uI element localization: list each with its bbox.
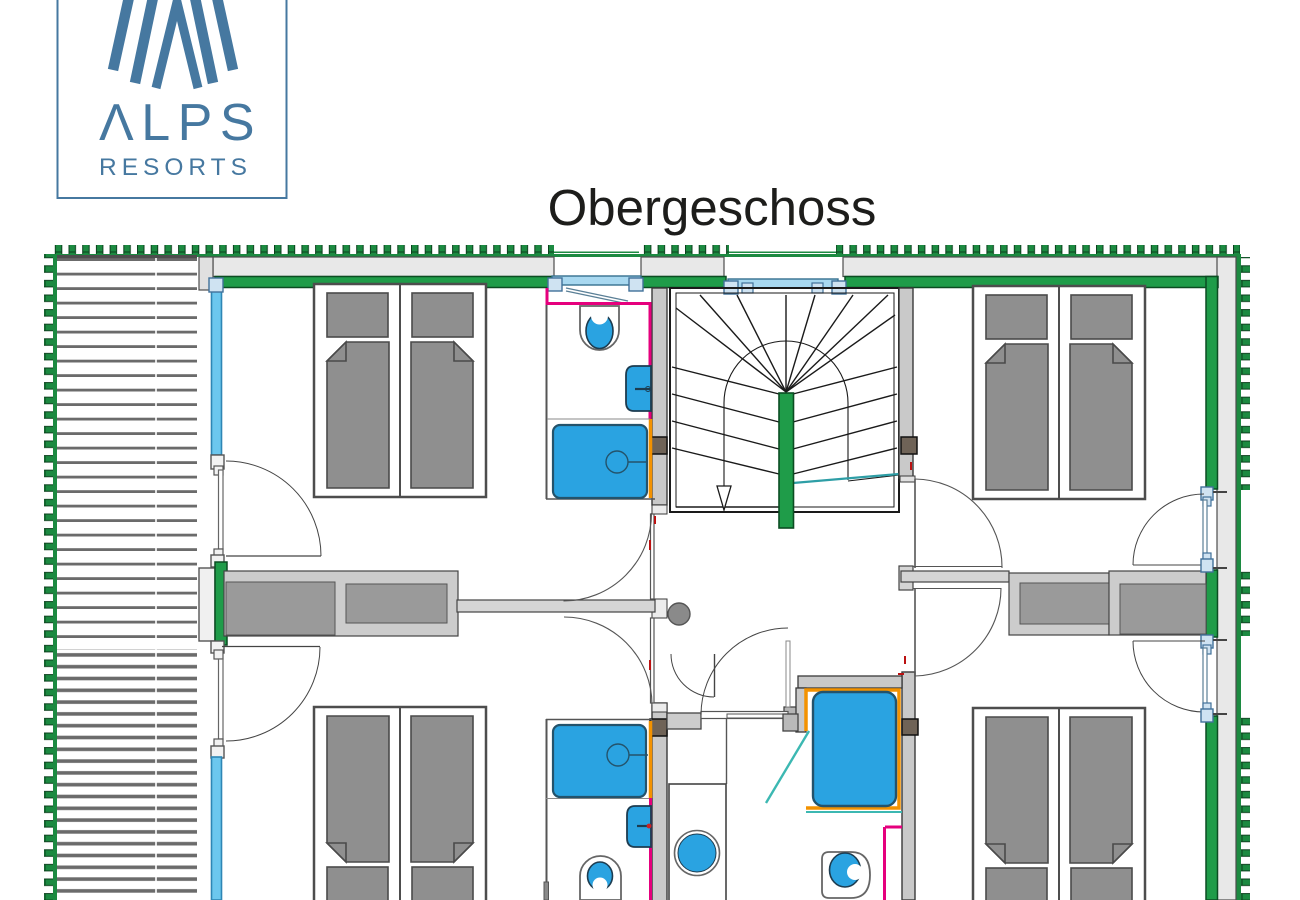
svg-text:ΛLPS: ΛLPS <box>99 94 262 152</box>
svg-text:RESORTS: RESORTS <box>99 154 252 181</box>
svg-text:Obergeschoss: Obergeschoss <box>548 179 877 236</box>
